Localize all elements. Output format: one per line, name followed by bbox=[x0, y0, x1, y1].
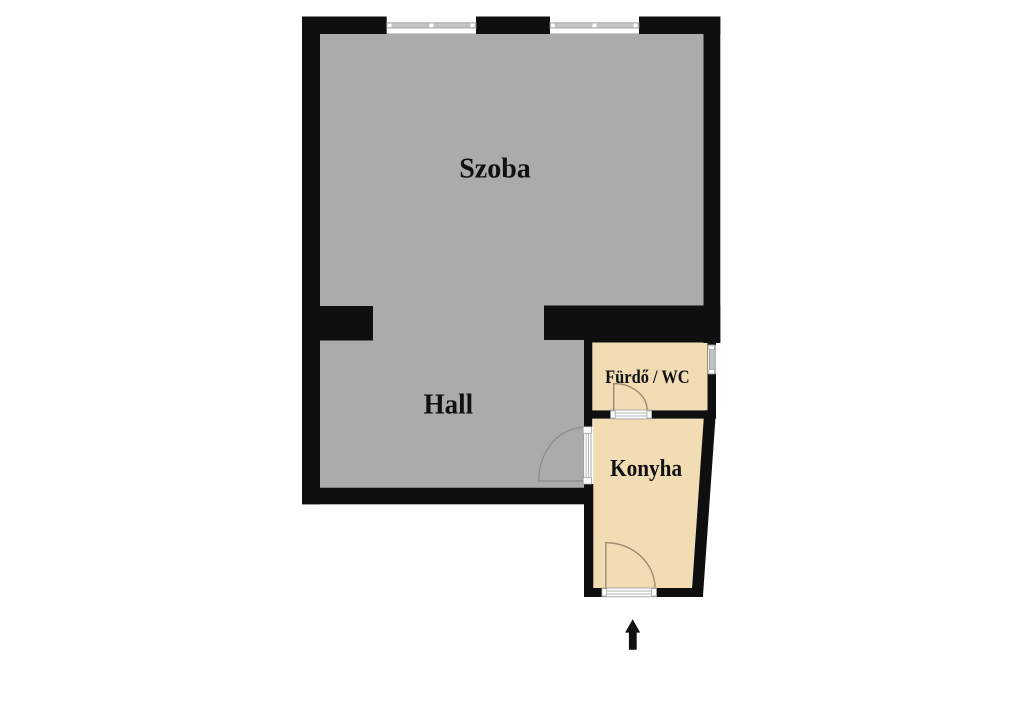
svg-text:Szoba: Szoba bbox=[459, 154, 531, 185]
svg-text:Hall: Hall bbox=[424, 390, 474, 421]
svg-text:Konyha: Konyha bbox=[610, 456, 682, 482]
svg-text:Fürdő / WC: Fürdő / WC bbox=[605, 367, 690, 388]
